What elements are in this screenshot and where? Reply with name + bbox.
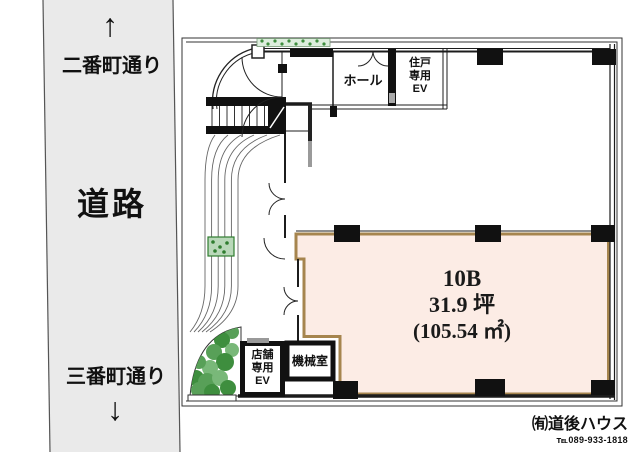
approach-slope-stripes [190, 135, 280, 332]
road-label: 道路 [60, 186, 164, 223]
stairs [206, 97, 286, 134]
residential-elevator-label: 住戸 専用 EV [394, 57, 446, 96]
hedge [257, 39, 330, 47]
shop-elevator-label: 店舗 専用 EV [242, 349, 283, 388]
trees [188, 325, 241, 401]
north-arrow-icon: ↑ [88, 9, 132, 41]
window-strip [308, 141, 312, 167]
tree-planter-edge [188, 395, 236, 401]
unit-name: 10B [377, 266, 547, 292]
company-name: ㈲道後ハウス [532, 415, 628, 435]
elevator-door-mark [247, 338, 269, 343]
unit-area-sqm: (105.54 ㎡) [377, 318, 547, 344]
south-arrow-icon: ↓ [93, 393, 137, 425]
floor-plan-page: ↑ 二番町通り 道路 三番町通り ↓ ホール 住戸 専用 EV 店舗 専用 EV… [0, 0, 640, 452]
machine-room-label: 機械室 [286, 355, 334, 369]
walkway-planter [208, 237, 234, 256]
realtor-credit: ㈲道後ハウス ℡089-933-1818 [532, 415, 628, 446]
top-street-label: 二番町通り [50, 55, 174, 78]
unit-info: 10B 31.9 坪 (105.54 ㎡) [377, 266, 547, 344]
hall-label: ホール [332, 74, 394, 89]
bottom-street-label: 三番町通り [54, 366, 178, 389]
unit-area-tsubo: 31.9 坪 [377, 292, 547, 318]
phone-number: ℡089-933-1818 [532, 435, 628, 446]
entrance-post [252, 45, 264, 58]
